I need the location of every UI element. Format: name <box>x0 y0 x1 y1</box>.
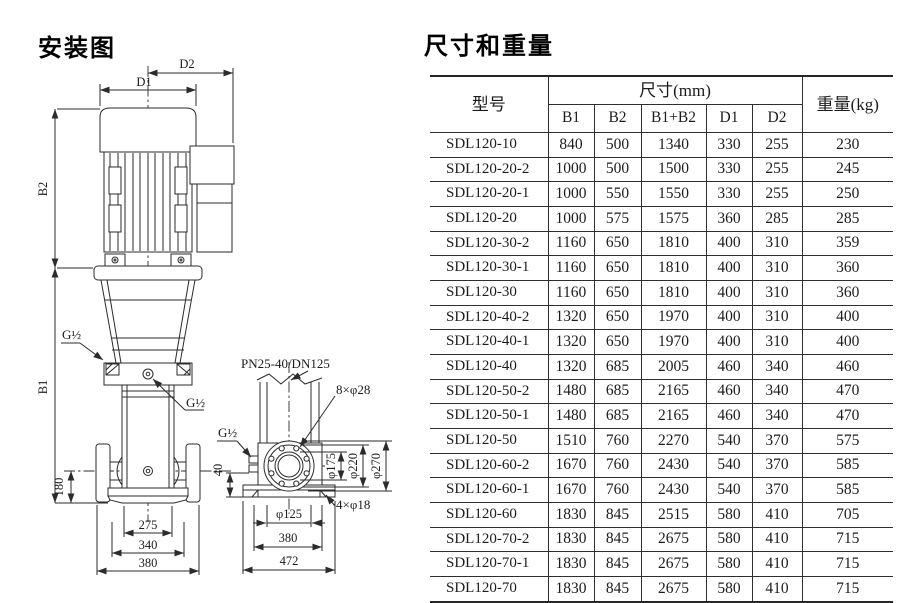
value-cell: 650 <box>594 330 641 355</box>
dim-label-phi270: φ270 <box>369 453 383 479</box>
value-cell: 500 <box>594 133 641 158</box>
value-cell: 470 <box>802 404 893 429</box>
sub-column-header: D2 <box>752 105 802 133</box>
model-header: 型号 <box>430 76 548 133</box>
value-cell: 460 <box>706 379 752 404</box>
pump-head <box>104 363 192 385</box>
table-row: SDL120-30-111606501810400310360 <box>430 256 893 281</box>
value-cell: 1000 <box>548 157 594 182</box>
value-cell: 1970 <box>641 305 706 330</box>
flange-bolts-label: 8×φ28 <box>336 382 370 397</box>
sub-column-header: B1+B2 <box>641 105 706 133</box>
value-cell: 1575 <box>641 207 706 232</box>
value-cell: 1480 <box>548 404 594 429</box>
value-cell: 255 <box>752 182 802 207</box>
value-cell: 540 <box>706 429 752 454</box>
sub-column-header: B1 <box>548 105 594 133</box>
value-cell: 285 <box>752 207 802 232</box>
table-row: SDL120-70-118308452675580410715 <box>430 552 893 577</box>
table-body: SDL120-108405001340330255230SDL120-20-21… <box>430 133 893 602</box>
value-cell: 255 <box>752 133 802 158</box>
value-cell: 845 <box>594 552 641 577</box>
sub-column-header: D1 <box>706 105 752 133</box>
table-row: SDL120-60-116707602430540370585 <box>430 478 893 503</box>
value-cell: 410 <box>752 552 802 577</box>
model-cell: SDL120-30-1 <box>430 256 548 281</box>
value-cell: 400 <box>802 330 893 355</box>
value-cell: 2675 <box>641 577 706 602</box>
model-cell: SDL120-70 <box>430 577 548 602</box>
value-cell: 400 <box>802 305 893 330</box>
model-cell: SDL120-50-1 <box>430 404 548 429</box>
value-cell: 285 <box>802 207 893 232</box>
value-cell: 1830 <box>548 503 594 528</box>
value-cell: 310 <box>752 305 802 330</box>
value-cell: 360 <box>706 207 752 232</box>
table-row: SDL120-108405001340330255230 <box>430 133 893 158</box>
value-cell: 685 <box>594 404 641 429</box>
table-row: SDL120-70-218308452675580410715 <box>430 527 893 552</box>
terminal-box <box>190 146 234 252</box>
header-row-1: 型号 尺寸(mm) 重量(kg) <box>430 76 893 105</box>
model-cell: SDL120-70-2 <box>430 527 548 552</box>
value-cell: 650 <box>594 256 641 281</box>
value-cell: 370 <box>752 429 802 454</box>
value-cell: 310 <box>752 256 802 281</box>
value-cell: 1320 <box>548 330 594 355</box>
front-view <box>55 66 234 575</box>
pump-base <box>108 488 188 503</box>
value-cell: 650 <box>594 305 641 330</box>
value-cell: 715 <box>802 552 893 577</box>
flange-spec-label: PN25-40/DN125 <box>241 356 330 371</box>
model-cell: SDL120-40-1 <box>430 330 548 355</box>
value-cell: 470 <box>802 379 893 404</box>
value-cell: 845 <box>594 527 641 552</box>
model-cell: SDL120-20-2 <box>430 157 548 182</box>
dim-label-phi220: φ220 <box>346 453 360 479</box>
model-cell: SDL120-70-1 <box>430 552 548 577</box>
table-row: SDL120-60-216707602430540370585 <box>430 453 893 478</box>
value-cell: 230 <box>802 133 893 158</box>
weight-header: 重量(kg) <box>802 76 893 133</box>
table-row: SDL120-40-113206501970400310400 <box>430 330 893 355</box>
value-cell: 845 <box>594 577 641 602</box>
value-cell: 255 <box>752 157 802 182</box>
value-cell: 1500 <box>641 157 706 182</box>
value-cell: 575 <box>594 207 641 232</box>
value-cell: 1670 <box>548 453 594 478</box>
value-cell: 540 <box>706 478 752 503</box>
port-label-g-vent: G½ <box>62 327 81 342</box>
table-row: SDL120-5015107602270540370575 <box>430 429 893 454</box>
model-cell: SDL120-60 <box>430 503 548 528</box>
table-row: SDL120-50-214806852165460340470 <box>430 379 893 404</box>
value-cell: 580 <box>706 527 752 552</box>
dim-label-340: 340 <box>139 538 158 552</box>
value-cell: 400 <box>706 305 752 330</box>
value-cell: 1320 <box>548 355 594 380</box>
value-cell: 2675 <box>641 527 706 552</box>
table-row: SDL120-30-211606501810400310359 <box>430 231 893 256</box>
dimensions-table: 型号 尺寸(mm) 重量(kg) B1B2B1+B2D1D2 SDL120-10… <box>430 75 893 603</box>
value-cell: 650 <box>594 281 641 306</box>
value-cell: 575 <box>802 429 893 454</box>
value-cell: 760 <box>594 453 641 478</box>
value-cell: 580 <box>706 577 752 602</box>
dim-label-380-side: 380 <box>279 531 298 545</box>
dim-label-380-front: 380 <box>139 556 158 570</box>
value-cell: 340 <box>752 355 802 380</box>
dim-label-472: 472 <box>280 554 299 568</box>
value-cell: 585 <box>802 478 893 503</box>
value-cell: 1830 <box>548 577 594 602</box>
discharge-flange-face <box>264 441 314 491</box>
value-cell: 1810 <box>641 256 706 281</box>
model-cell: SDL120-10 <box>430 133 548 158</box>
installation-diagram: D2 D1 B2 B1 G½ G½ G½ 180 275 340 380 PN2… <box>0 0 420 586</box>
table-row: SDL120-50-114806852165460340470 <box>430 404 893 429</box>
value-cell: 1810 <box>641 231 706 256</box>
value-cell: 1160 <box>548 256 594 281</box>
table-row: SDL120-4013206852005460340460 <box>430 355 893 380</box>
value-cell: 840 <box>548 133 594 158</box>
value-cell: 580 <box>706 552 752 577</box>
value-cell: 250 <box>802 182 893 207</box>
base-bolts-label: 4×φ18 <box>336 497 370 512</box>
table-row: SDL120-2010005751575360285285 <box>430 207 893 232</box>
port-label-g-port: G½ <box>186 395 205 410</box>
value-cell: 540 <box>706 453 752 478</box>
value-cell: 2430 <box>641 453 706 478</box>
value-cell: 370 <box>752 453 802 478</box>
value-cell: 1000 <box>548 207 594 232</box>
value-cell: 330 <box>706 157 752 182</box>
value-cell: 2165 <box>641 404 706 429</box>
value-cell: 760 <box>594 429 641 454</box>
value-cell: 685 <box>594 379 641 404</box>
dim-label-b1: B1 <box>36 380 50 395</box>
dim-label-phi175: φ175 <box>324 453 338 479</box>
value-cell: 310 <box>752 281 802 306</box>
value-cell: 2005 <box>641 355 706 380</box>
value-cell: 400 <box>706 330 752 355</box>
motor-fan-cap <box>100 108 196 152</box>
value-cell: 500 <box>594 157 641 182</box>
dim-label-b2: B2 <box>36 182 50 197</box>
pump-lantern <box>101 280 195 363</box>
table-row: SDL120-20-110005501550330255250 <box>430 182 893 207</box>
dim-label-180: 180 <box>52 478 66 497</box>
value-cell: 460 <box>802 355 893 380</box>
value-cell: 400 <box>706 231 752 256</box>
model-cell: SDL120-60-2 <box>430 453 548 478</box>
discharge-pipe <box>257 374 322 443</box>
value-cell: 845 <box>594 503 641 528</box>
value-cell: 1000 <box>548 182 594 207</box>
table-title: 尺寸和重量 <box>424 26 554 61</box>
value-cell: 310 <box>752 330 802 355</box>
value-cell: 2430 <box>641 478 706 503</box>
value-cell: 400 <box>706 281 752 306</box>
value-cell: 685 <box>594 355 641 380</box>
table-row: SDL120-7018308452675580410715 <box>430 577 893 602</box>
value-cell: 340 <box>752 404 802 429</box>
value-cell: 1830 <box>548 527 594 552</box>
table-row: SDL120-40-213206501970400310400 <box>430 305 893 330</box>
value-cell: 1160 <box>548 281 594 306</box>
dim-label-40: 40 <box>211 464 225 477</box>
value-cell: 1510 <box>548 429 594 454</box>
value-cell: 330 <box>706 133 752 158</box>
value-cell: 359 <box>802 231 893 256</box>
model-cell: SDL120-40 <box>430 355 548 380</box>
model-cell: SDL120-50-2 <box>430 379 548 404</box>
value-cell: 340 <box>752 379 802 404</box>
value-cell: 1340 <box>641 133 706 158</box>
value-cell: 245 <box>802 157 893 182</box>
model-cell: SDL120-20-1 <box>430 182 548 207</box>
value-cell: 400 <box>706 256 752 281</box>
value-cell: 1810 <box>641 281 706 306</box>
value-cell: 1480 <box>548 379 594 404</box>
value-cell: 2675 <box>641 552 706 577</box>
dim-label-phi125: φ125 <box>276 507 302 521</box>
model-cell: SDL120-30 <box>430 281 548 306</box>
value-cell: 715 <box>802 577 893 602</box>
value-cell: 580 <box>706 503 752 528</box>
value-cell: 2165 <box>641 379 706 404</box>
model-cell: SDL120-40-2 <box>430 305 548 330</box>
value-cell: 410 <box>752 527 802 552</box>
value-cell: 460 <box>706 404 752 429</box>
dim-label-d1: D1 <box>136 75 151 89</box>
value-cell: 370 <box>752 478 802 503</box>
value-cell: 585 <box>802 453 893 478</box>
dim-label-275: 275 <box>139 518 158 532</box>
value-cell: 330 <box>706 182 752 207</box>
table-row: SDL120-6018308452515580410705 <box>430 503 893 528</box>
size-group-header: 尺寸(mm) <box>548 76 802 105</box>
value-cell: 1970 <box>641 330 706 355</box>
motor-body <box>104 152 192 252</box>
value-cell: 550 <box>594 182 641 207</box>
value-cell: 1550 <box>641 182 706 207</box>
value-cell: 1320 <box>548 305 594 330</box>
value-cell: 410 <box>752 503 802 528</box>
value-cell: 1830 <box>548 552 594 577</box>
model-cell: SDL120-20 <box>430 207 548 232</box>
model-cell: SDL120-30-2 <box>430 231 548 256</box>
value-cell: 705 <box>802 503 893 528</box>
table-row: SDL120-3011606501810400310360 <box>430 281 893 306</box>
model-cell: SDL120-50 <box>430 429 548 454</box>
value-cell: 760 <box>594 478 641 503</box>
value-cell: 460 <box>706 355 752 380</box>
value-cell: 715 <box>802 527 893 552</box>
value-cell: 2515 <box>641 503 706 528</box>
dim-label-d2: D2 <box>179 57 194 71</box>
port-label-g-side: G½ <box>218 425 237 440</box>
value-cell: 360 <box>802 281 893 306</box>
value-cell: 410 <box>752 577 802 602</box>
value-cell: 2270 <box>641 429 706 454</box>
value-cell: 650 <box>594 231 641 256</box>
value-cell: 1670 <box>548 478 594 503</box>
value-cell: 360 <box>802 256 893 281</box>
table-row: SDL120-20-210005001500330255245 <box>430 157 893 182</box>
sub-column-header: B2 <box>594 105 641 133</box>
value-cell: 1160 <box>548 231 594 256</box>
model-cell: SDL120-60-1 <box>430 478 548 503</box>
value-cell: 310 <box>752 231 802 256</box>
